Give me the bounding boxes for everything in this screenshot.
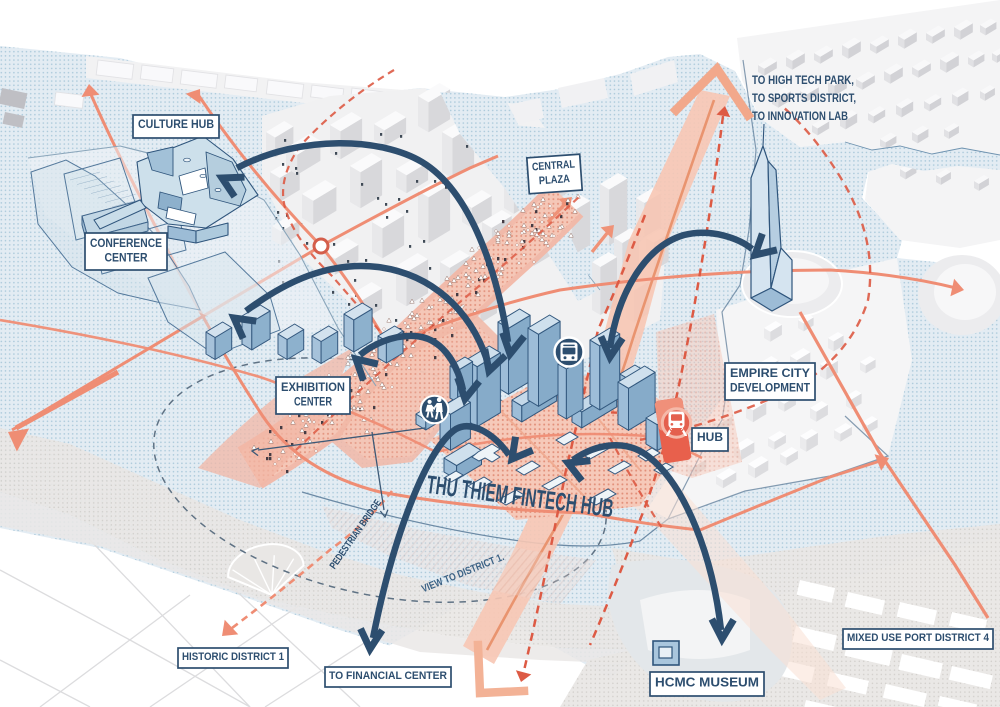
svg-text:TO SPORTS DISTRICT,: TO SPORTS DISTRICT, <box>752 91 856 105</box>
svg-text:CENTER: CENTER <box>294 397 333 409</box>
svg-text:HCMC MUSEUM: HCMC MUSEUM <box>655 676 759 690</box>
svg-text:TO HIGH TECH PARK,: TO HIGH TECH PARK, <box>752 73 854 87</box>
svg-text:CONFERENCE: CONFERENCE <box>90 238 162 250</box>
svg-text:TO FINANCIAL CENTER: TO FINANCIAL CENTER <box>329 670 447 682</box>
svg-text:CENTER: CENTER <box>105 253 149 265</box>
svg-text:TO INNOVATION LAB: TO INNOVATION LAB <box>752 109 848 123</box>
svg-text:EXHIBITION: EXHIBITION <box>281 382 345 394</box>
svg-text:HUB: HUB <box>697 432 723 444</box>
svg-text:EMPIRE CITY: EMPIRE CITY <box>730 368 810 380</box>
svg-text:PLAZA: PLAZA <box>539 173 571 187</box>
svg-text:CULTURE HUB: CULTURE HUB <box>138 119 214 131</box>
svg-text:MIXED USE PORT DISTRICT 4: MIXED USE PORT DISTRICT 4 <box>847 632 990 644</box>
svg-text:HISTORIC DISTRICT 1: HISTORIC DISTRICT 1 <box>182 651 284 663</box>
svg-text:DEVELOPMENT: DEVELOPMENT <box>730 383 810 395</box>
